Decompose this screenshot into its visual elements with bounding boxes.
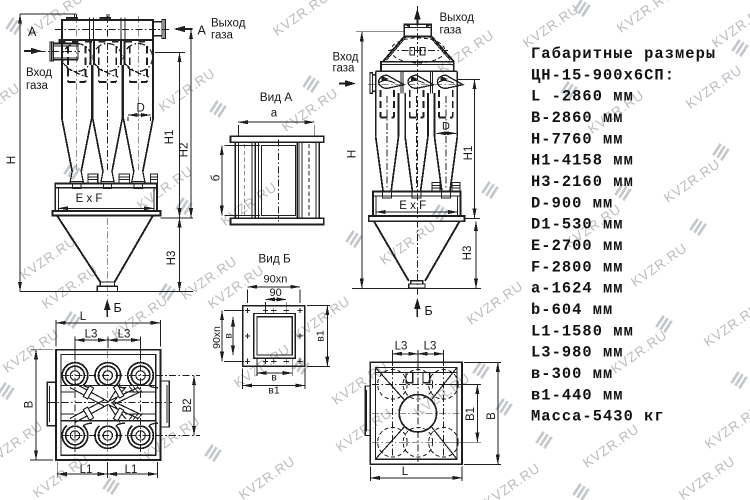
svg-text:ЦН-15-900х6СП:: ЦН-15-900х6СП: (531, 66, 675, 84)
svg-text:Н3-2160 мм: Н3-2160 мм (531, 173, 634, 191)
svg-text:Н2: Н2 (179, 143, 191, 158)
svg-text:а: а (271, 108, 278, 120)
svg-text:Н1-4158 мм: Н1-4158 мм (531, 152, 634, 170)
svg-text:Масса-5430 кг: Масса-5430 кг (531, 408, 665, 426)
svg-text:Вход: Вход (26, 67, 52, 79)
svg-text:90хn: 90хn (263, 274, 287, 286)
svg-text:А: А (28, 25, 37, 39)
svg-text:в1-440 мм: в1-440 мм (531, 386, 624, 404)
svg-text:Е-2700 мм: Е-2700 мм (531, 237, 624, 255)
svg-text:D: D (137, 103, 145, 115)
svg-text:F-2800 мм: F-2800 мм (531, 258, 624, 276)
svg-text:L3: L3 (85, 329, 98, 341)
svg-text:Н: Н (345, 150, 359, 159)
svg-text:в1: в1 (315, 330, 327, 342)
svg-text:В1: В1 (465, 407, 477, 421)
svg-text:L3: L3 (424, 341, 437, 353)
svg-text:газа: газа (333, 63, 355, 75)
svg-text:А: А (198, 24, 207, 38)
svg-text:Выход: Выход (440, 12, 475, 24)
svg-text:Вид Б: Вид Б (258, 252, 291, 266)
svg-text:Вид А: Вид А (260, 90, 293, 104)
svg-text:Н1: Н1 (463, 146, 475, 161)
svg-text:L: L (80, 311, 87, 323)
svg-text:Б: Б (114, 301, 122, 315)
svg-text:L1: L1 (125, 464, 138, 476)
svg-text:в: в (223, 333, 235, 339)
svg-text:в: в (271, 372, 277, 384)
svg-text:В-2860 мм: В-2860 мм (531, 109, 624, 127)
svg-text:L3: L3 (395, 341, 408, 353)
svg-text:D: D (442, 121, 450, 133)
svg-text:в1: в1 (268, 385, 280, 397)
svg-text:L3-980 мм: L3-980 мм (531, 344, 624, 362)
svg-text:газа: газа (26, 80, 48, 92)
svg-text:Е х F: Е х F (76, 193, 103, 205)
svg-text:Н-7760 мм: Н-7760 мм (531, 130, 624, 148)
svg-text:L1: L1 (80, 464, 93, 476)
svg-text:Н1: Н1 (164, 130, 176, 145)
svg-text:Н: Н (4, 156, 18, 165)
svg-text:В: В (486, 412, 498, 420)
svg-text:b-604 мм: b-604 мм (531, 301, 613, 319)
svg-text:а-1624 мм: а-1624 мм (531, 280, 624, 298)
svg-text:газа: газа (440, 25, 462, 37)
svg-text:Н3: Н3 (462, 246, 474, 261)
svg-text:Б: Б (425, 304, 433, 318)
svg-text:L -2860 мм: L -2860 мм (531, 88, 634, 106)
svg-text:90хn: 90хn (211, 326, 223, 349)
svg-text:Габаритные размеры: Габаритные размеры (531, 45, 716, 63)
svg-text:D1-530 мм: D1-530 мм (531, 216, 624, 234)
svg-text:L3: L3 (118, 329, 131, 341)
svg-text:Н3: Н3 (166, 251, 178, 266)
svg-text:L1-1580 мм: L1-1580 мм (531, 322, 634, 340)
svg-text:В: В (24, 400, 36, 408)
svg-text:D-900 мм: D-900 мм (531, 194, 613, 212)
svg-text:в-300 мм: в-300 мм (531, 365, 613, 383)
svg-text:Е х F: Е х F (399, 200, 426, 212)
svg-text:б: б (211, 174, 223, 181)
svg-text:Выход: Выход (211, 18, 246, 30)
svg-text:В2: В2 (182, 398, 194, 412)
svg-text:L: L (402, 466, 409, 478)
svg-text:газа: газа (211, 30, 233, 42)
svg-text:90: 90 (269, 287, 281, 299)
